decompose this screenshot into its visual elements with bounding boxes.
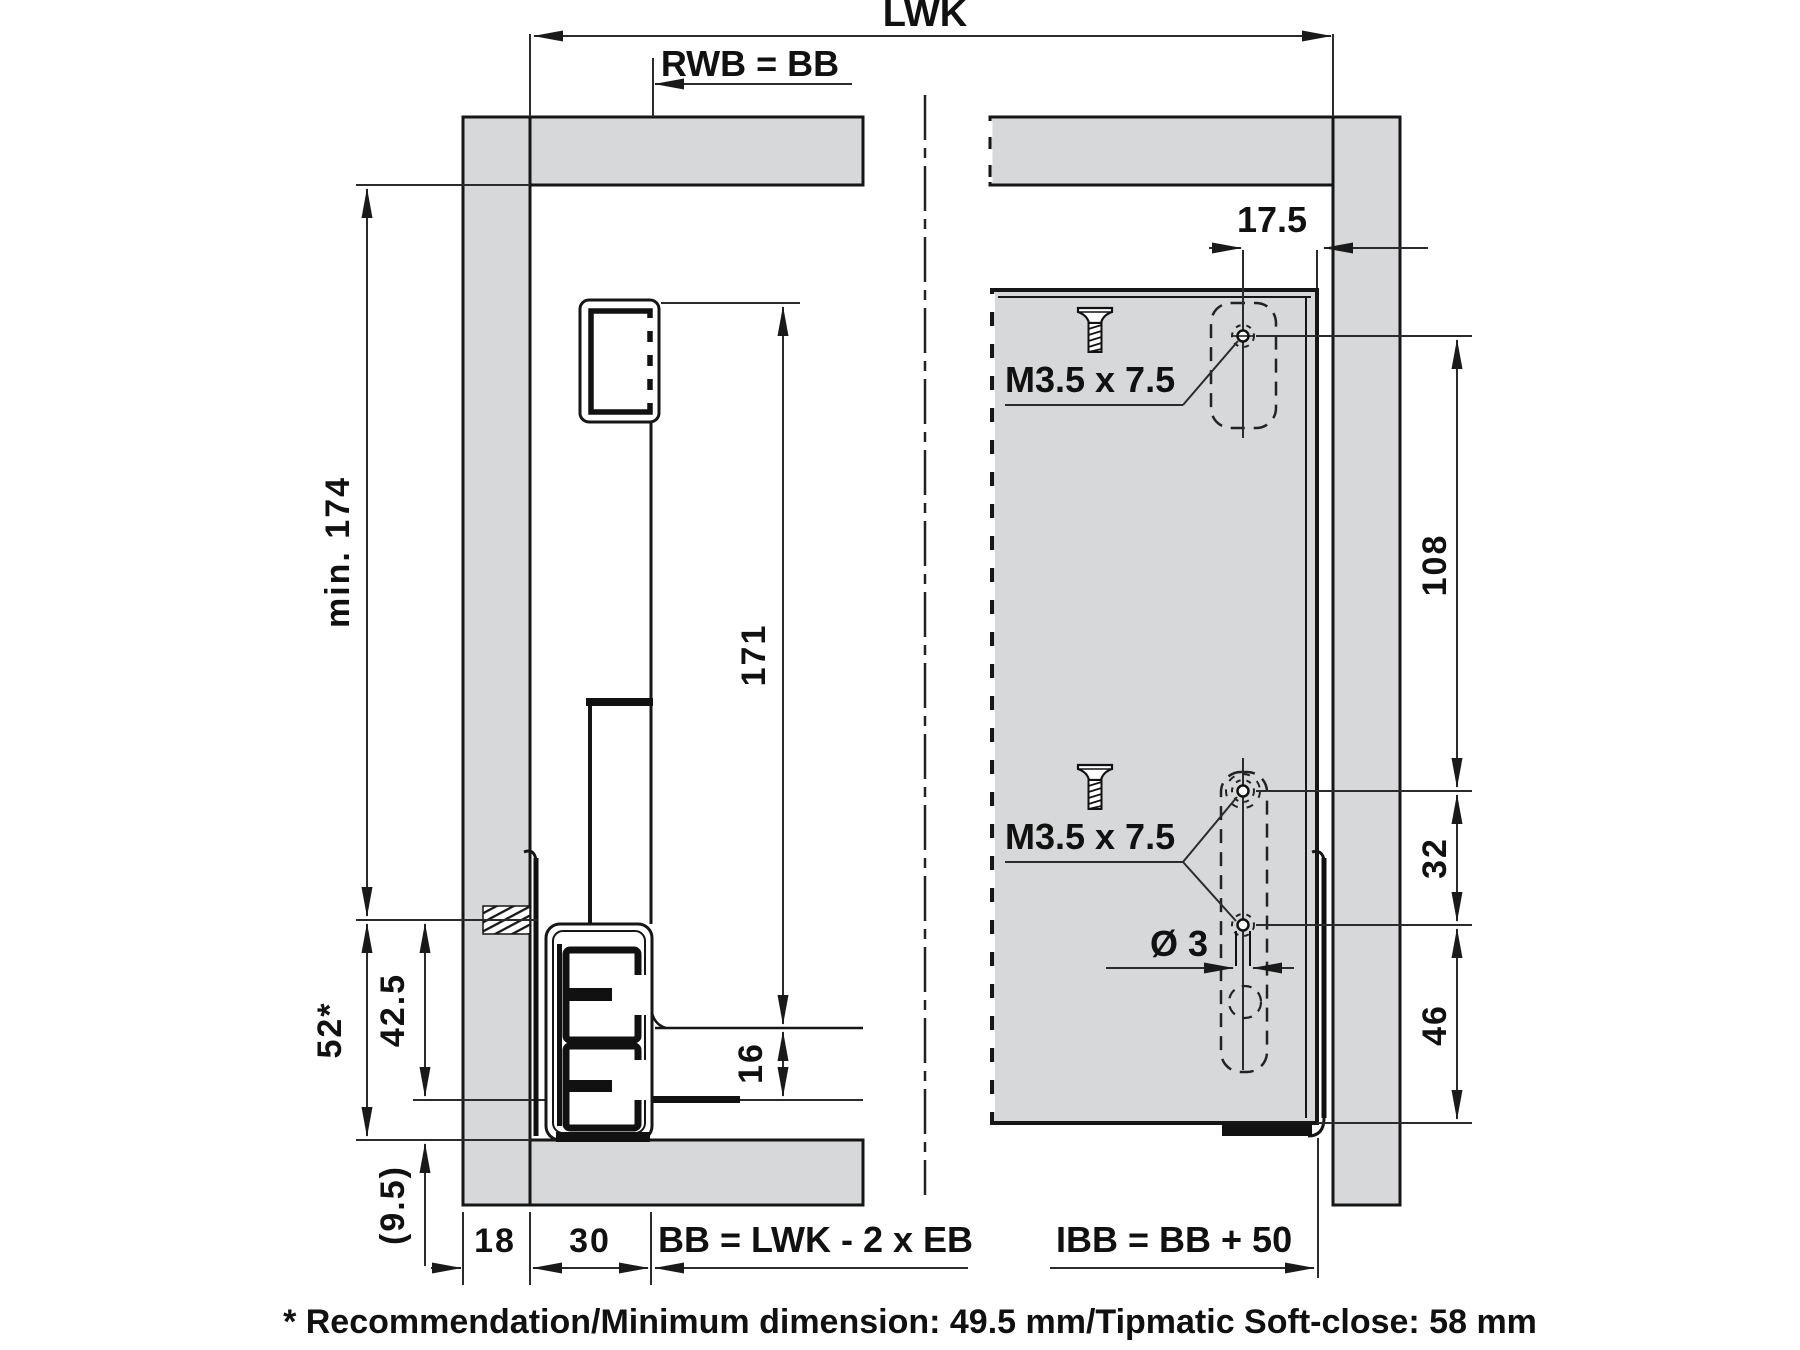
label-46: 46 bbox=[1416, 1004, 1454, 1046]
label-rwb: RWB = BB bbox=[661, 43, 839, 84]
label-18: 18 bbox=[474, 1222, 516, 1260]
label-30: 30 bbox=[569, 1222, 611, 1260]
right-view-back-panel bbox=[990, 117, 1400, 1205]
bracket-base-bar bbox=[1222, 1124, 1312, 1136]
slide-runner-profile bbox=[546, 924, 740, 1142]
label-m35-top: M3.5 x 7.5 bbox=[1005, 359, 1175, 400]
label-52: 52* bbox=[311, 1001, 349, 1058]
left-view-cross-section bbox=[413, 117, 863, 1205]
technical-drawing-page: LWK RWB = BB min. 174 52* 42.5 (9.5) 171… bbox=[0, 0, 1800, 1350]
drawer-railing-tube bbox=[580, 300, 659, 422]
right-cabinet-top-panel bbox=[990, 117, 1333, 185]
label-9-5: (9.5) bbox=[374, 1165, 412, 1245]
label-17-5: 17.5 bbox=[1237, 199, 1307, 240]
label-lwk: LWK bbox=[883, 0, 968, 35]
label-m35-mid: M3.5 x 7.5 bbox=[1005, 816, 1175, 857]
right-cabinet-side-panel bbox=[1333, 117, 1400, 1205]
left-cabinet-top-panel bbox=[530, 117, 863, 185]
label-min-174: min. 174 bbox=[319, 476, 357, 628]
left-cabinet-bottom-panel bbox=[530, 1140, 863, 1205]
label-16: 16 bbox=[732, 1042, 770, 1084]
drawer-side-step bbox=[586, 698, 653, 706]
label-42-5: 42.5 bbox=[374, 973, 412, 1047]
label-ibb-formula: IBB = BB + 50 bbox=[1056, 1219, 1292, 1260]
label-dia-3: Ø 3 bbox=[1150, 923, 1208, 964]
label-171: 171 bbox=[735, 624, 773, 687]
label-32: 32 bbox=[1416, 837, 1454, 879]
label-bb-formula: BB = LWK - 2 x EB bbox=[658, 1219, 973, 1260]
footnote-text: * Recommendation/Minimum dimension: 49.5… bbox=[283, 1303, 1537, 1341]
label-108: 108 bbox=[1416, 534, 1454, 597]
left-cabinet-side-panel bbox=[463, 117, 530, 1205]
drawing-canvas: LWK RWB = BB min. 174 52* 42.5 (9.5) 171… bbox=[0, 0, 1800, 1350]
